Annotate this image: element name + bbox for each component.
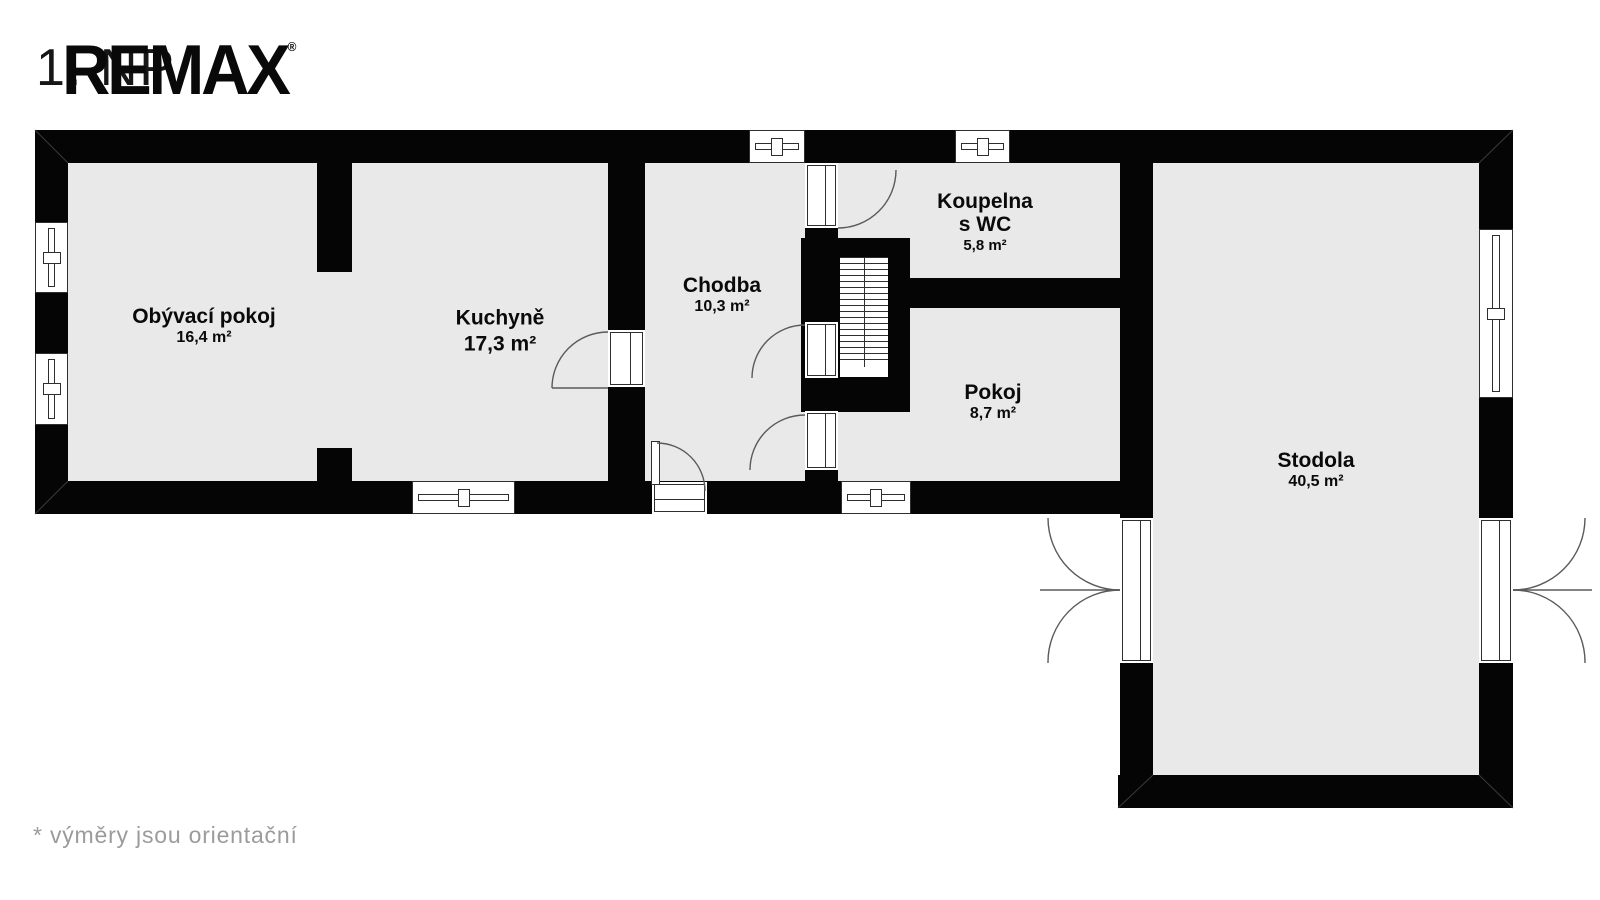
room-area: 16,4 m² [132,330,276,347]
corner-mitre-stodola-bottom-right [1479,775,1513,808]
room-name: Koupelna [937,190,1033,213]
corner-mitre-top-left [35,130,68,163]
swing-arc-barn-left-lower [1048,590,1120,663]
door-swing-arcs [0,0,1600,900]
room-area: 17,3 m² [456,334,545,356]
footnote: * výměry jsou orientační [33,822,298,850]
swing-arc-room-door [750,415,805,470]
room-name: Chodba [683,274,761,297]
swing-arc-staircase-door [752,325,805,378]
room-area: 10,3 m² [683,299,761,316]
room-name-line2: s WC [937,213,1033,236]
swing-arc-kitchen-door [552,332,608,388]
corner-mitre-stodola-bottom-left [1118,775,1153,808]
corner-mitre-bottom-left [35,481,68,514]
swing-arc-bathroom-door [838,170,896,228]
floor-plan: 1. NP REMAX® [0,0,1600,900]
swing-arc-entry-door [657,443,705,491]
swing-arc-barn-left-upper [1048,518,1120,590]
room-label-koupelna: Koupelna s WC 5,8 m² [937,190,1033,254]
swing-arc-barn-right-upper [1513,518,1585,590]
room-area: 5,8 m² [937,238,1033,254]
room-label-pokoj: Pokoj 8,7 m² [964,381,1021,423]
room-name: Stodola [1278,449,1355,472]
room-label-obyvaci-pokoj: Obývací pokoj 16,4 m² [132,305,276,347]
room-label-chodba: Chodba 10,3 m² [683,274,761,316]
corner-mitre-top-right [1479,130,1513,163]
room-name: Kuchyně [456,306,545,329]
room-area: 8,7 m² [964,406,1021,423]
room-label-stodola: Stodola 40,5 m² [1278,449,1355,491]
swing-arc-barn-right-lower [1513,590,1585,663]
room-label-kuchyne: Kuchyně 17,3 m² [456,306,545,355]
room-name: Obývací pokoj [132,305,276,328]
room-name: Pokoj [964,381,1021,404]
room-area: 40,5 m² [1278,474,1355,491]
